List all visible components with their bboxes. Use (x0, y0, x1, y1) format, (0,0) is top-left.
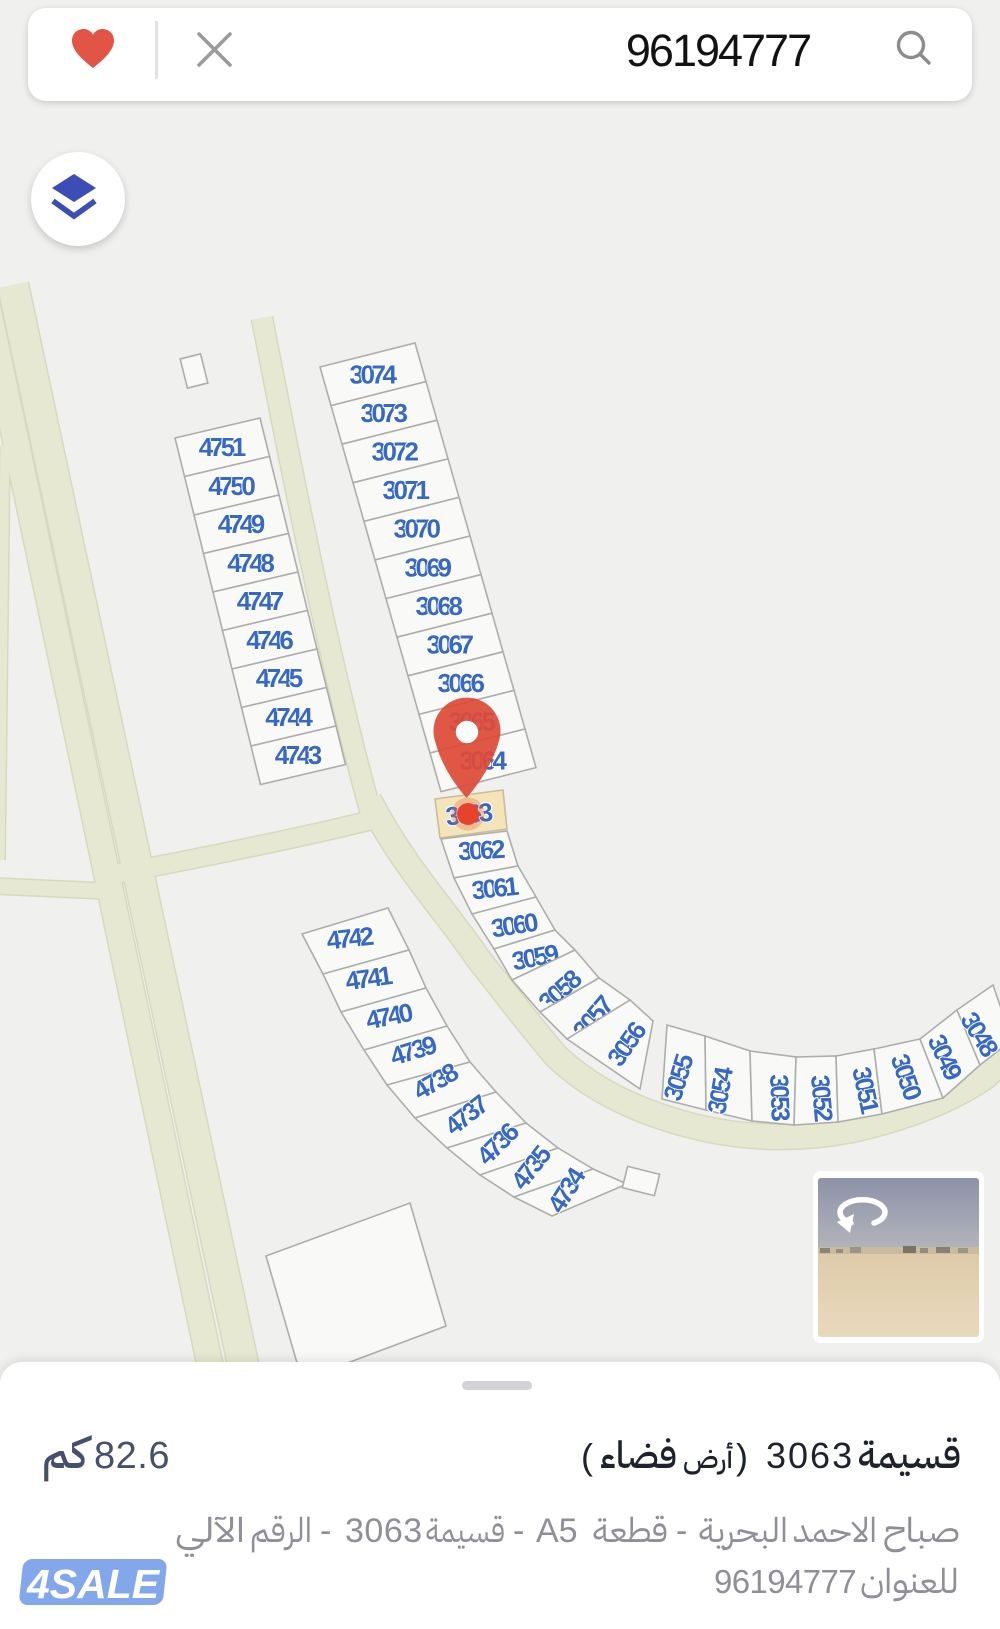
svg-text:3061: 3061 (470, 871, 520, 906)
svg-text:3071: 3071 (383, 475, 430, 505)
svg-text:3062: 3062 (457, 834, 506, 866)
svg-text:(: ( (581, 1436, 593, 1477)
svg-text:3053: 3053 (764, 1074, 796, 1122)
svg-text:3063: 3063 (345, 1512, 423, 1550)
svg-text:3063: 3063 (766, 1435, 854, 1476)
svg-text:4744: 4744 (265, 702, 313, 732)
svg-text:3052: 3052 (805, 1073, 839, 1122)
svg-text:4751: 4751 (199, 432, 246, 462)
svg-text:-: - (320, 1512, 331, 1550)
svg-text:3069: 3069 (405, 552, 452, 582)
svg-text:3073: 3073 (361, 398, 408, 428)
svg-text:4747: 4747 (237, 586, 284, 616)
svg-text:4749: 4749 (218, 509, 265, 539)
svg-text:3072: 3072 (372, 437, 419, 467)
svg-text:): ) (736, 1436, 748, 1477)
svg-text:4745: 4745 (256, 663, 303, 693)
svg-text:-: - (676, 1512, 687, 1550)
svg-text:3067: 3067 (427, 630, 474, 660)
svg-text:3074: 3074 (350, 359, 398, 389)
svg-text:4742: 4742 (325, 921, 375, 956)
svg-text:4750: 4750 (208, 471, 255, 501)
svg-text:4746: 4746 (246, 625, 293, 655)
svg-text:4748: 4748 (227, 548, 274, 578)
svg-text:96194777: 96194777 (714, 1563, 856, 1600)
svg-text:3066: 3066 (438, 668, 485, 698)
svg-text:3070: 3070 (394, 514, 441, 544)
svg-text:A5: A5 (536, 1512, 578, 1550)
svg-text:3068: 3068 (416, 591, 463, 621)
svg-text:-: - (513, 1512, 524, 1550)
svg-text:82.6: 82.6 (94, 1435, 170, 1477)
svg-text:4743: 4743 (275, 740, 322, 770)
